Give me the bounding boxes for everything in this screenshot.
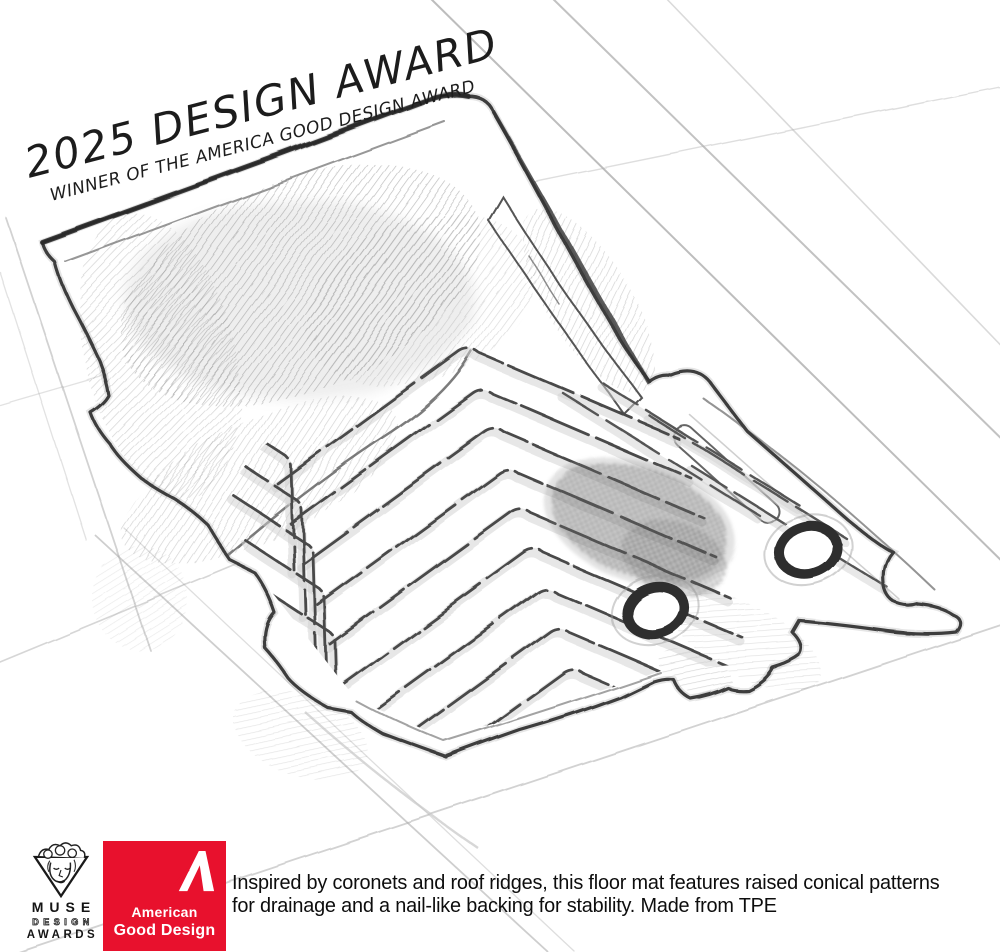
agd-line1: American [103,904,226,922]
agd-line2: Good Design [103,921,226,941]
mat-drawing [42,95,960,928]
product-description: Inspired by coronets and roof ridges, th… [232,872,967,917]
agd-text: American Good Design [103,904,226,942]
american-good-design-logo: American Good Design [103,841,226,951]
product-image: 2025 DESIGN AWARD WINNER OF THE AMERICA … [0,0,1000,952]
muse-awards-label: AWARDS [22,929,100,941]
muse-name-label: MUSE [22,899,100,915]
muse-design-label: DESIGN [22,917,100,927]
muse-design-awards-logo: MUSE DESIGN AWARDS [22,842,100,948]
muse-triangle-face-icon [23,842,99,898]
agd-a-icon [174,850,216,894]
